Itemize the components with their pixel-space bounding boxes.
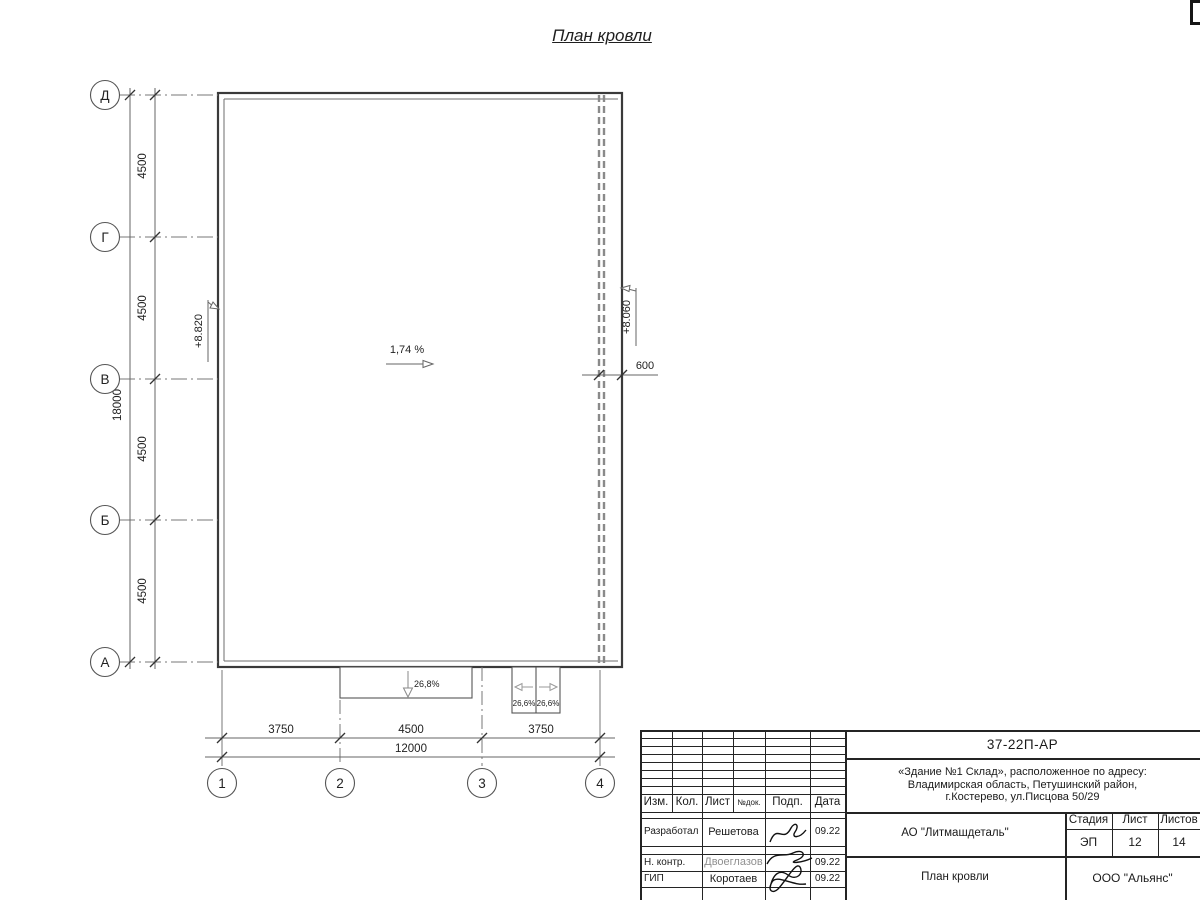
tb-sheets-value: 14 xyxy=(1158,829,1200,856)
tb-address-line: Владимирская область, Петушинский район, xyxy=(908,779,1137,792)
title-block: Изм. Кол. Лист №док. Подп. Дата Разработ… xyxy=(640,730,1200,900)
tb-doc-number: 37-22П-АР xyxy=(845,732,1200,758)
axis-label: 4 xyxy=(596,776,604,791)
tb-company: АО "Литмашдеталь" xyxy=(845,812,1065,856)
tb-name: Решетова xyxy=(702,818,765,846)
axis-label: 3 xyxy=(478,776,486,791)
roof-outline xyxy=(218,93,622,667)
dock-slope-label: 26,6% xyxy=(513,699,536,708)
tb-project-address: «Здание №1 Склад», расположенное по адре… xyxy=(845,758,1200,812)
svg-text:3750: 3750 xyxy=(528,724,554,736)
tb-address-line: г.Костерево, ул.Писцова 50/29 xyxy=(946,791,1100,804)
tb-role: Н. контр. xyxy=(640,854,702,871)
axis-label: А xyxy=(100,655,109,670)
h-dim-labels: 3750 4500 3750 12000 xyxy=(268,724,554,755)
svg-text:1,74 %: 1,74 % xyxy=(390,344,424,356)
svg-text:+8.060: +8.060 xyxy=(621,300,633,334)
tb-stage-value: ЭП xyxy=(1065,829,1112,856)
axis-label: Б xyxy=(101,513,110,528)
axis-label: Д xyxy=(100,88,109,103)
signature-reshetova xyxy=(766,820,810,846)
row-axis-bubbles: Д Г В Б А xyxy=(91,81,120,677)
tb-name: Двоеглазов xyxy=(702,854,765,871)
tb-header-data: Дата xyxy=(810,794,845,812)
tb-header-kol: Кол. xyxy=(672,794,702,812)
svg-text:18000: 18000 xyxy=(112,389,124,421)
svg-text:3750: 3750 xyxy=(268,724,294,736)
svg-text:+8.820: +8.820 xyxy=(193,314,205,348)
elevation-right: +8.060 xyxy=(621,286,636,347)
tb-sheet-value: 12 xyxy=(1112,829,1158,856)
row-axis-lines xyxy=(119,95,218,662)
roof-plan-drawing: 4500 4500 4500 4500 18000 Д Г В Б А xyxy=(0,0,1200,830)
axis-label: В xyxy=(100,372,109,387)
tb-org: ООО "Альянс" xyxy=(1065,856,1200,900)
tb-address-line: «Здание №1 Склад», расположенное по адре… xyxy=(898,766,1147,779)
svg-text:12000: 12000 xyxy=(395,743,427,755)
axis-label: 2 xyxy=(336,776,344,791)
tb-date: 09.22 xyxy=(810,818,845,846)
tb-name: Коротаев xyxy=(702,871,765,887)
axis-label: Г xyxy=(101,230,109,245)
dock-ramps: 26,6% 26,6% xyxy=(512,667,560,713)
svg-text:4500: 4500 xyxy=(137,295,149,321)
tb-sheet-label: Лист xyxy=(1112,812,1158,829)
svg-text:4500: 4500 xyxy=(137,578,149,604)
tb-sheets-label: Листов xyxy=(1158,812,1200,829)
tb-header-ndoc: №док. xyxy=(733,794,765,812)
sheet-frame-corner xyxy=(1190,0,1200,25)
tb-role: ГИП xyxy=(640,871,702,887)
tb-drawing-name: План кровли xyxy=(845,856,1065,900)
signature-korotaev xyxy=(764,848,816,894)
canopy-ramp: 26,8% xyxy=(340,667,472,698)
canopy-slope-label: 26,8% xyxy=(414,679,440,689)
dock-slope-label: 26,6% xyxy=(537,699,560,708)
elevation-left: +8.820 xyxy=(193,300,219,362)
tb-header-izm: Изм. xyxy=(640,794,672,812)
tb-header-list: Лист xyxy=(702,794,733,812)
tb-stage-label: Стадия xyxy=(1065,812,1112,829)
tb-role: Разработал xyxy=(640,818,702,846)
axis-label: 1 xyxy=(218,776,226,791)
drawing-sheet: План кровли 4500 4500 xyxy=(0,0,1200,900)
svg-text:4500: 4500 xyxy=(137,436,149,462)
svg-text:4500: 4500 xyxy=(137,153,149,179)
svg-text:600: 600 xyxy=(636,360,654,372)
tb-header-podp: Подп. xyxy=(765,794,810,812)
svg-text:4500: 4500 xyxy=(398,724,424,736)
col-axis-bubbles: 1 2 3 4 xyxy=(208,769,615,798)
